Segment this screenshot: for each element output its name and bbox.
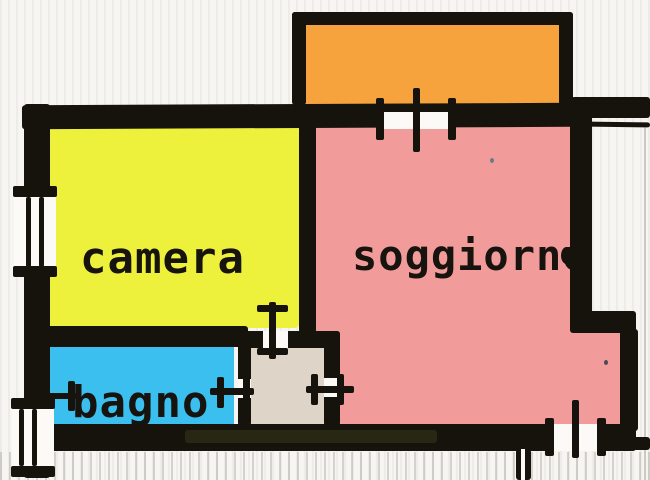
- room-label-bagno: bagno: [72, 381, 209, 425]
- scan-tint-bottom-wall: [185, 430, 437, 443]
- balcony-door-symbol-tick: [448, 98, 456, 140]
- soggiorno-door-symbol-tick: [337, 374, 344, 405]
- left-window-upper-symbol-line: [26, 197, 31, 267]
- wall-right-bump: [561, 247, 572, 264]
- room-label-camera: camera: [80, 237, 245, 281]
- wall-bottom-stub: [632, 437, 650, 450]
- bottom-window-symbol-tick: [597, 418, 606, 456]
- wall-right-lower: [620, 329, 638, 431]
- left-window-lower-symbol-line: [32, 409, 37, 466]
- room-camera: [46, 126, 300, 328]
- right-margin-line: [644, 124, 646, 480]
- left-window-upper-symbol-cap-top: [13, 186, 57, 197]
- left-window-upper-symbol-cap-bottom: [13, 266, 57, 277]
- balcony-wall-right: [559, 12, 573, 105]
- wall-top-right-thin-line: [586, 122, 650, 128]
- balcony-door-symbol-tick: [376, 98, 384, 140]
- wall-top: [22, 103, 573, 129]
- left-window-lower-symbol-line: [19, 409, 24, 466]
- bottom-window-symbol-line: [572, 400, 579, 458]
- bagno-door-symbol-tick: [217, 377, 224, 408]
- bottom-window-symbol-tick: [545, 418, 554, 456]
- left-window-upper-symbol-line: [39, 197, 44, 267]
- room-label-soggiorno: soggiorno: [352, 235, 589, 277]
- left-window-upper-opening: [14, 196, 56, 277]
- bagno-wall-symbol-tick: [68, 381, 75, 411]
- wall-bottom-tail-gap: [521, 449, 525, 480]
- floorplan: camera soggiorno bagno: [0, 0, 650, 480]
- balcony-door-symbol-line: [413, 88, 420, 152]
- scan-noise-strip: [0, 452, 650, 480]
- camera-door-symbol-tick: [257, 305, 288, 312]
- camera-door-symbol-tick: [257, 348, 288, 355]
- bagno-door-symbol-tick: [243, 377, 250, 408]
- balcony-wall-top: [292, 12, 573, 25]
- wall-divider-camera-soggiorno: [299, 112, 316, 333]
- left-window-lower-symbol-cap-bottom: [11, 466, 55, 477]
- soggiorno-door-symbol-tick: [311, 374, 318, 405]
- wall-camera-bagno: [28, 326, 248, 347]
- balcony-wall-left: [292, 12, 306, 105]
- scan-speck: [604, 360, 608, 365]
- room-balcony: [304, 22, 561, 106]
- wall-right: [570, 112, 592, 318]
- left-window-lower-symbol-cap-top: [11, 398, 55, 409]
- scan-speck: [490, 158, 494, 163]
